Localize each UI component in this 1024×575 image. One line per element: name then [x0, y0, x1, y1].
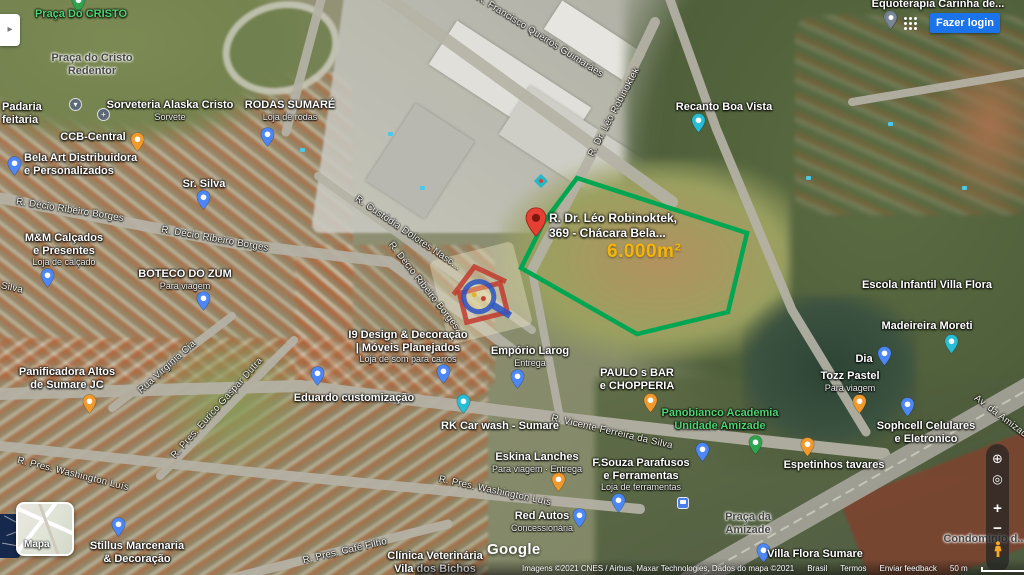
map-toggle-label: Mapa: [24, 539, 50, 550]
church-icon[interactable]: +: [97, 108, 110, 121]
bus-station-icon[interactable]: [677, 497, 689, 509]
poi-name: CCB-Central: [60, 131, 125, 144]
poi-subtitle: Concessionária: [511, 523, 573, 534]
chevron-right-icon: ▸: [7, 24, 12, 35]
poi-name: M&M Calçados: [25, 232, 103, 245]
food-pin-icon[interactable]: [551, 472, 566, 492]
poi-name: Eduardo customização: [294, 392, 414, 405]
poi-label[interactable]: Panobianco AcademiaUnidade Amizade: [662, 407, 779, 432]
poi-name: Eskina Lanches: [492, 451, 582, 464]
poi-label[interactable]: Panificadora Altosde Sumare JC: [19, 366, 115, 391]
map-imagery-residential: [795, 15, 1024, 215]
map-controls: ⊕ ◎ + −: [986, 444, 1009, 572]
poi-name: Empório Larog: [491, 345, 569, 358]
poi-name: Praça Do CRISTO: [35, 8, 127, 21]
blue-pin-icon[interactable]: [310, 366, 325, 386]
map-imagery-vegetation: [625, 0, 1024, 470]
blue-pin-icon[interactable]: [695, 442, 710, 462]
marker-label-line2: 369 - Chácara Bela...: [549, 226, 677, 241]
sign-in-button[interactable]: Fazer login: [930, 13, 1000, 33]
attribution-link-termos[interactable]: Termos: [840, 564, 866, 573]
blue-pin-icon[interactable]: [900, 397, 915, 417]
poi-name: F.Souza Parafusos: [592, 457, 689, 470]
poi-label[interactable]: Sr. Silva: [183, 178, 226, 191]
poi-name: BOTECO DO ZUM: [138, 268, 232, 281]
poi-subtitle: Loja de rodas: [245, 112, 335, 123]
street-label: Rua Virgínia Cia: [136, 338, 198, 396]
poi-name: Tozz Pastel: [820, 370, 879, 383]
satellite-map[interactable]: 6.000m² R. Dr. Léo Robinoktek, 369 - Chá…: [0, 0, 1024, 575]
poi-label[interactable]: M&M Calçadose PresentesLoja de calçado: [25, 232, 103, 268]
poi-name: e Eletronico: [877, 433, 975, 446]
street-label: R. Pres. Washington Luís: [438, 474, 552, 509]
poi-label[interactable]: Escola Infantil Villa Flora: [862, 279, 992, 292]
green-pin-icon[interactable]: [748, 435, 763, 455]
map-imagery-pool: [300, 148, 305, 152]
imagery-attribution: Imagens ©2021 CNES / Airbus, Maxar Techn…: [522, 564, 794, 573]
business-logo-marker[interactable]: [534, 174, 548, 188]
poi-label[interactable]: Praça Do CRISTO: [35, 8, 127, 21]
map-imagery-pool: [388, 132, 393, 136]
teal-pin-icon[interactable]: [691, 113, 706, 133]
poi-name: RODAS SUMARÉ: [245, 99, 335, 112]
poi-label[interactable]: PAULO s BARe CHOPPERIA: [600, 367, 675, 392]
poi-subtitle: Loja de som para carros: [348, 354, 467, 365]
street-label: R. Pres. Eurico Gaspar Dutra: [169, 355, 265, 460]
scale-bar: [981, 567, 1024, 572]
map-imagery-pool: [806, 176, 811, 180]
blue-pin-icon[interactable]: [196, 291, 211, 311]
poi-label[interactable]: Eskina LanchesPara viagem · Entrega: [492, 451, 582, 475]
poi-name: Padaria: [2, 101, 42, 114]
poi-name: e Ferramentas: [592, 470, 689, 483]
poi-name: Escola Infantil Villa Flora: [862, 279, 992, 292]
attribution-link-brasil[interactable]: Brasil: [807, 564, 827, 573]
poi-name: RK Car wash - Sumare: [441, 420, 559, 433]
food-pin-icon[interactable]: [643, 393, 658, 413]
street-label: R. Francisco Queirós Guimarães: [475, 0, 606, 80]
street-label: R. Décio Ribeiro Borges: [15, 196, 124, 224]
map-imagery-roof: [429, 21, 592, 152]
poi-label[interactable]: F.Souza Parafusose FerramentasLoja de fe…: [592, 457, 689, 493]
poi-label[interactable]: Madeireira Moreti: [881, 320, 972, 333]
area-label: Praça daAmizade: [725, 511, 771, 536]
poi-label[interactable]: Sorveteria Alaska CristoSorvete: [107, 99, 234, 123]
poi-subtitle: Loja de ferramentas: [592, 482, 689, 493]
attribution-link-feedback[interactable]: Enviar feedback: [880, 564, 937, 573]
street-label: R. Décio Ribeiro Borges: [386, 240, 462, 333]
blue-pin-icon[interactable]: [611, 493, 626, 513]
food-pin-icon[interactable]: [800, 437, 815, 457]
poi-label[interactable]: Recanto Boa Vista: [676, 101, 772, 114]
poi-label[interactable]: Empório LarogEntrega: [491, 345, 569, 369]
poi-name: e CHOPPERIA: [600, 380, 675, 393]
poi-subtitle: Entrega: [491, 358, 569, 369]
poi-label[interactable]: CCB-Central: [60, 131, 125, 144]
poi-label[interactable]: Espetinhos tavares: [784, 459, 885, 472]
poi-label[interactable]: Sophcell Celularese Eletronico: [877, 420, 975, 445]
street-label: Av. da Amizade: [972, 393, 1024, 444]
saved-place-pin-icon[interactable]: [884, 11, 898, 34]
poi-name: Panobianco Academia: [662, 407, 779, 420]
area-label: Condomínio d...: [943, 533, 1024, 546]
blue-pin-icon[interactable]: [510, 369, 525, 389]
poi-name: de Sumare JC: [19, 379, 115, 392]
poi-name: PAULO s BAR: [600, 367, 675, 380]
food-pin-icon[interactable]: [852, 394, 867, 414]
area-label: Praça do CristoRedentor: [51, 52, 132, 77]
map-imagery-pool: [962, 186, 967, 190]
street-label: R. Pres. Washington Luís: [16, 455, 130, 493]
zoom-in-button[interactable]: +: [986, 501, 1009, 516]
my-location-icon[interactable]: ◎: [986, 473, 1009, 485]
teal-pin-icon[interactable]: [456, 394, 471, 414]
side-panel-toggle[interactable]: ▸: [0, 14, 20, 46]
poi-label[interactable]: Eduardo customização: [294, 392, 414, 405]
teal-pin-icon[interactable]: [944, 334, 959, 354]
poi-name: e Personalizados: [24, 165, 137, 178]
poi-name: & Decoração: [90, 553, 184, 566]
poi-subtitle: Sorvete: [107, 112, 234, 123]
poi-name: Unidade Amizade: [662, 420, 779, 433]
blue-pin-icon[interactable]: [7, 156, 22, 176]
map-imagery-roof: [366, 103, 475, 218]
poi-label[interactable]: RK Car wash - Sumare: [441, 420, 559, 433]
map-view-toggle[interactable]: Mapa: [16, 502, 74, 556]
parcel-area-label: 6.000m²: [607, 241, 681, 263]
poi-name: Sorveteria Alaska Cristo: [107, 99, 234, 112]
poi-name: Equoterapia Carinha de...: [872, 0, 1005, 11]
globe-icon[interactable]: ⊕: [986, 452, 1009, 465]
blue-pin-icon[interactable]: [572, 508, 587, 528]
poi-label[interactable]: Dia: [855, 353, 872, 366]
food-pin-icon[interactable]: [130, 132, 145, 152]
poi-name: e Presentes: [25, 245, 103, 258]
poi-name: Espetinhos tavares: [784, 459, 885, 472]
poi-name: Recanto Boa Vista: [676, 101, 772, 114]
poi-subtitle: Para viagem: [138, 281, 232, 292]
blue-pin-icon[interactable]: [111, 517, 126, 537]
poi-label[interactable]: Equoterapia Carinha de...: [872, 0, 1005, 11]
poi-name: Bela Art Distribuidora: [24, 152, 137, 165]
poi-label[interactable]: RODAS SUMARÉLoja de rodas: [245, 99, 335, 123]
map-imagery-track: [213, 0, 350, 107]
poi-label[interactable]: BOTECO DO ZUMPara viagem: [138, 268, 232, 292]
poi-name: | Móveis Planejados: [348, 342, 467, 355]
blue-pin-icon[interactable]: [260, 127, 275, 147]
map-imagery-pool: [420, 186, 425, 190]
google-logo[interactable]: Google: [487, 541, 540, 558]
poi-name: I9 Design & Decoração: [348, 329, 467, 342]
map-imagery-pool: [888, 122, 893, 126]
google-apps-grid-icon[interactable]: [904, 17, 917, 30]
poi-label[interactable]: Tozz PastelPara viagem: [820, 370, 879, 394]
blue-pin-icon[interactable]: [877, 346, 892, 366]
property-marker-label[interactable]: R. Dr. Léo Robinoktek, 369 - Chácara Bel…: [549, 211, 677, 241]
poi-name: feitaria: [2, 114, 42, 127]
attribution-bar: Imagens ©2021 CNES / Airbus, Maxar Techn…: [522, 564, 1024, 573]
poi-name: Panificadora Altos: [19, 366, 115, 379]
scale-label: 50 m: [950, 564, 968, 573]
poi-label[interactable]: Stillus Marcenaria& Decoração: [90, 540, 184, 565]
poi-name: Madeireira Moreti: [881, 320, 972, 333]
poi-name: Stillus Marcenaria: [90, 540, 184, 553]
street-label: R. Dr. Léo Robinoktek: [586, 66, 642, 159]
poi-label[interactable]: Padariafeitaria: [2, 101, 42, 126]
blue-pin-icon[interactable]: [196, 190, 211, 210]
poi-label[interactable]: Red AutosConcessionária: [511, 510, 573, 534]
street-label: R. Vicente Ferreira da Silva: [550, 413, 674, 452]
marker-label-line1: R. Dr. Léo Robinoktek,: [549, 211, 677, 226]
poi-subtitle: Loja de calçado: [25, 257, 103, 268]
blue-pin-icon[interactable]: [436, 364, 451, 384]
street-label: R. Pres. Café Filho: [302, 536, 388, 566]
bar-icon[interactable]: ▾: [69, 98, 82, 111]
map-imagery-residential: [295, 245, 495, 395]
poi-label[interactable]: I9 Design & Decoração| Móveis Planejados…: [348, 329, 467, 365]
poi-name: Sophcell Celulares: [877, 420, 975, 433]
pegman-icon[interactable]: [986, 541, 1009, 561]
street-label: Silva: [0, 280, 24, 295]
food-pin-icon[interactable]: [82, 394, 97, 414]
street-label: R. Décio Ribeiro Borges: [160, 224, 269, 254]
poi-subtitle: Para viagem: [820, 383, 879, 394]
property-marker-pin[interactable]: [525, 207, 547, 242]
poi-name: Dia: [855, 353, 872, 366]
poi-subtitle: Para viagem · Entrega: [492, 464, 582, 475]
map-imagery-dirt: [925, 30, 1024, 220]
poi-label[interactable]: Bela Art Distribuidorae Personalizados: [24, 152, 137, 177]
poi-name: Red Autos: [511, 510, 573, 523]
poi-name: Sr. Silva: [183, 178, 226, 191]
zoom-out-button[interactable]: −: [986, 521, 1009, 536]
blue-pin-icon[interactable]: [40, 268, 55, 288]
